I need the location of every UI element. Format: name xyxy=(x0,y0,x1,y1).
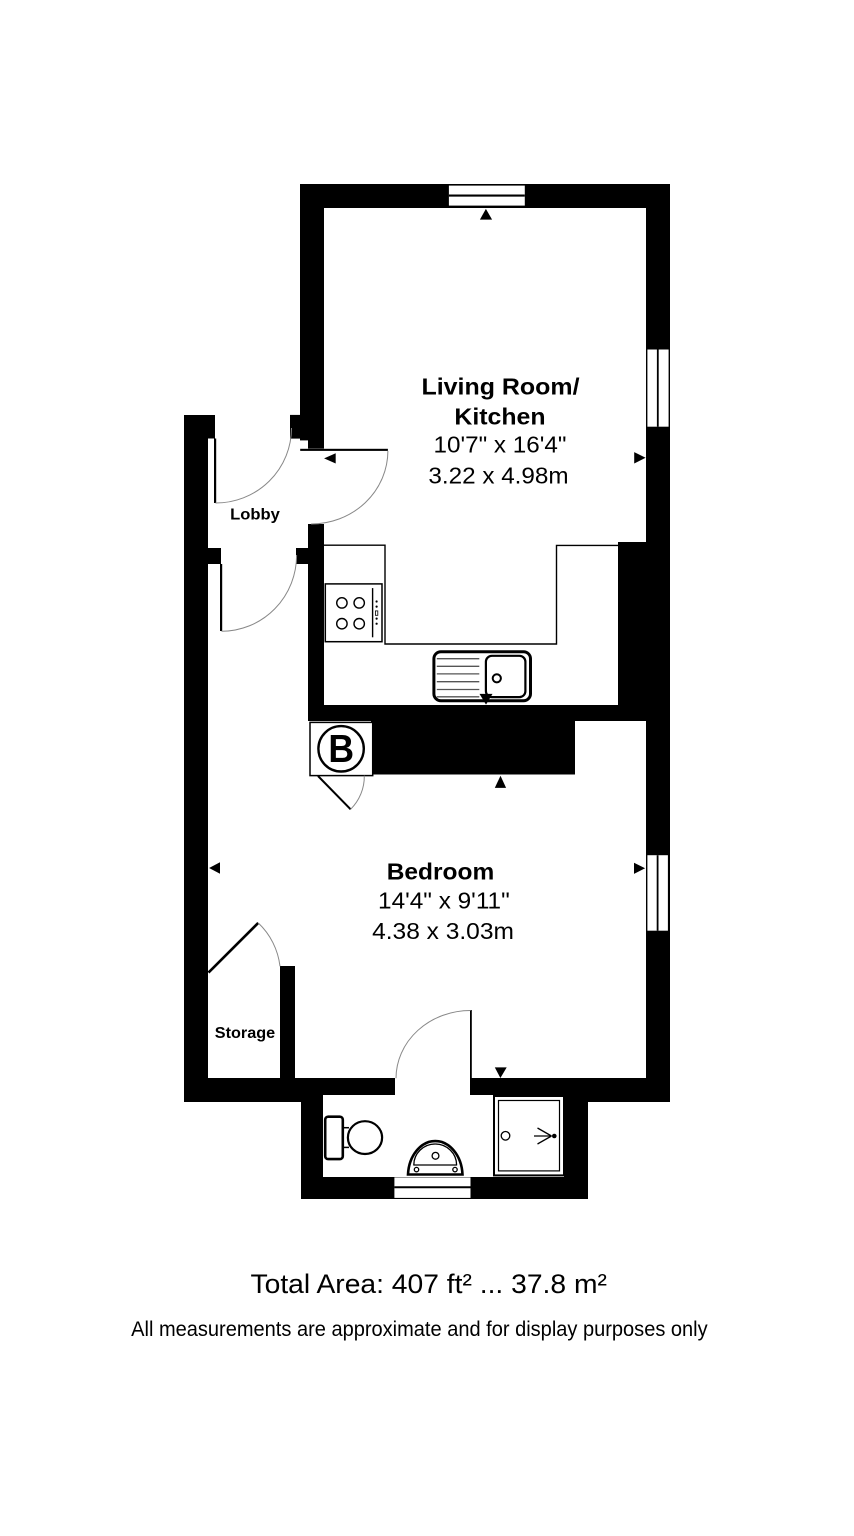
svg-text:4.38 x 3.03m: 4.38 x 3.03m xyxy=(372,918,514,944)
svg-text:14'4" x 9'11": 14'4" x 9'11" xyxy=(378,888,510,914)
svg-text:Kitchen: Kitchen xyxy=(454,404,545,430)
svg-text:3.22 x 4.98m: 3.22 x 4.98m xyxy=(428,463,568,489)
svg-text:B: B xyxy=(328,728,354,771)
svg-text:Lobby: Lobby xyxy=(230,506,280,523)
svg-text:Bedroom: Bedroom xyxy=(387,859,495,885)
svg-text:All measurements are approxima: All measurements are approximate and for… xyxy=(131,1318,708,1341)
svg-text:10'7" x 16'4": 10'7" x 16'4" xyxy=(434,432,567,458)
svg-text:Living Room/: Living Room/ xyxy=(422,374,581,400)
svg-text:Storage: Storage xyxy=(215,1025,276,1042)
svg-text:Total Area: 407 ft² ... 37.8 m: Total Area: 407 ft² ... 37.8 m² xyxy=(251,1268,607,1299)
